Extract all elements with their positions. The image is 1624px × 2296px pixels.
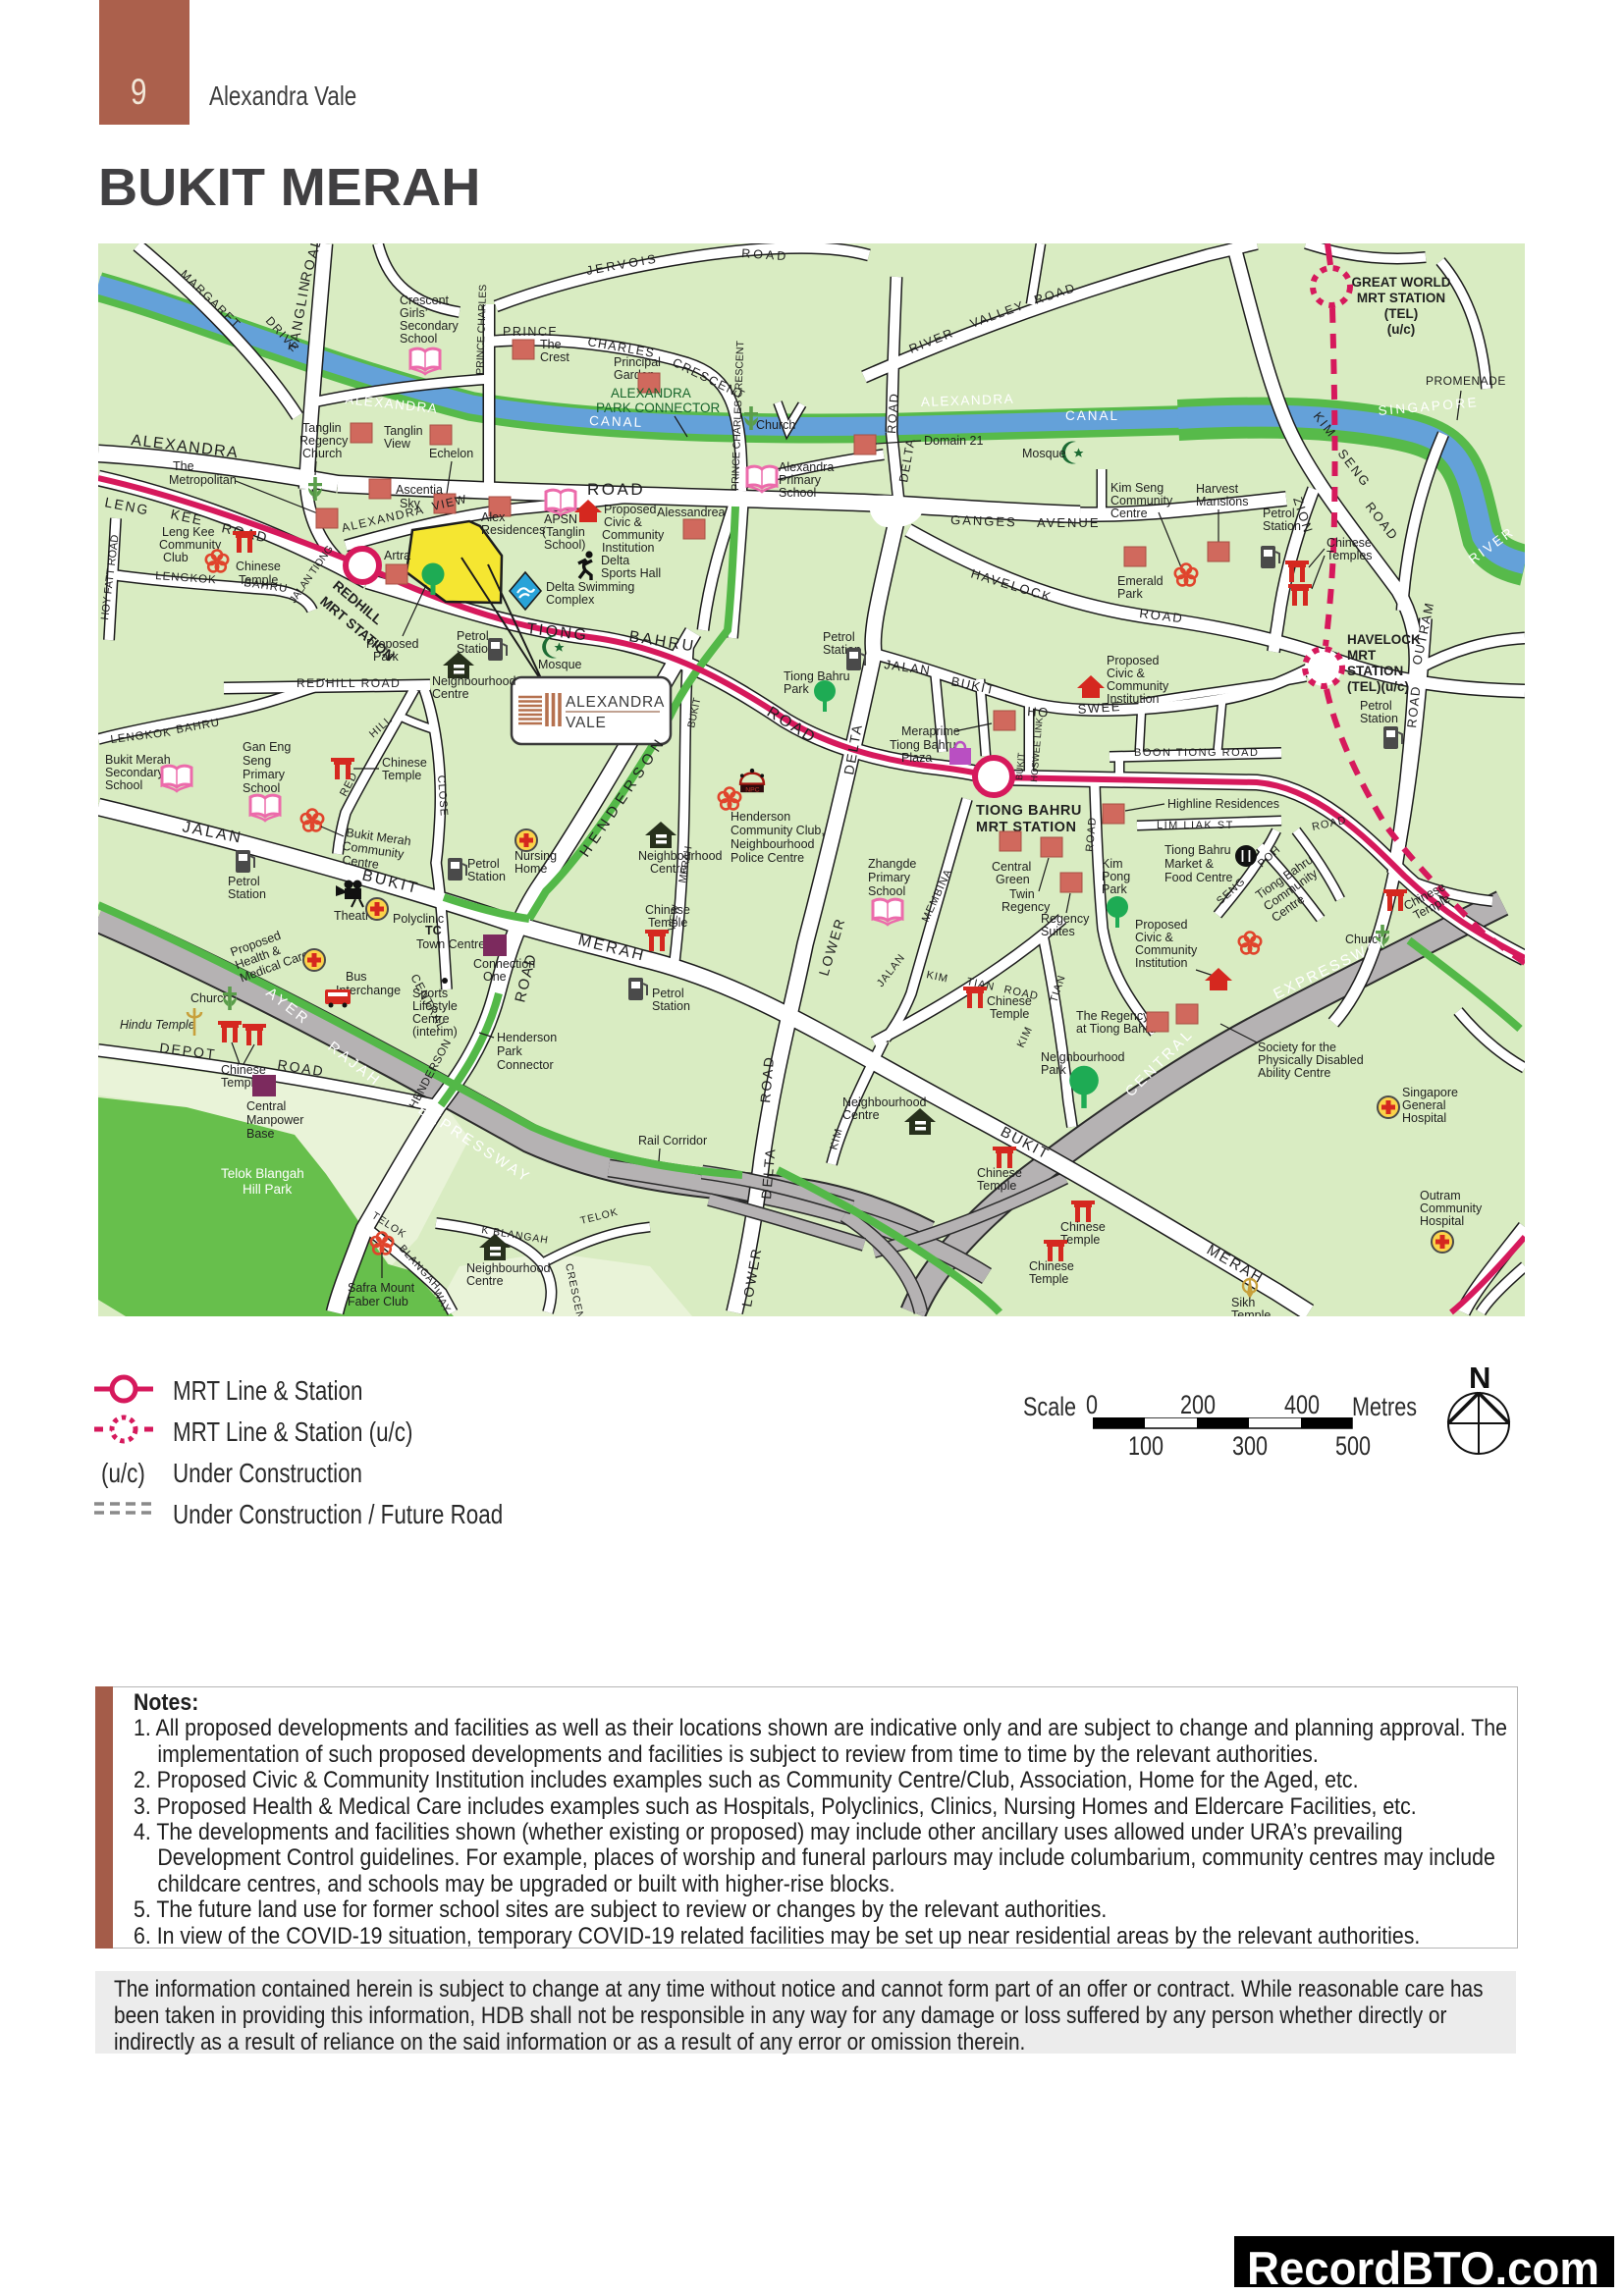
svg-text:Echelon: Echelon: [429, 447, 473, 460]
svg-text:Temple: Temple: [382, 769, 421, 782]
svg-text:Crescent: Crescent: [400, 294, 450, 307]
svg-text:Park: Park: [784, 682, 809, 696]
svg-text:View: View: [384, 437, 411, 451]
svg-text:Alexandra: Alexandra: [779, 460, 834, 474]
svg-text:Centre: Centre: [842, 1108, 880, 1122]
svg-text:Plaza: Plaza: [901, 751, 932, 765]
svg-text:Proposed: Proposed: [604, 503, 657, 516]
svg-text:Park: Park: [497, 1044, 522, 1058]
svg-text:Hindu Temple: Hindu Temple: [120, 1018, 195, 1032]
svg-text:Hospital: Hospital: [1402, 1111, 1446, 1125]
svg-text:ROAD: ROAD: [885, 392, 901, 434]
svg-text:Market &: Market &: [1164, 857, 1215, 871]
svg-text:Civic &: Civic &: [1107, 667, 1146, 680]
svg-text:Centre: Centre: [412, 1012, 450, 1026]
svg-text:Telok Blangah: Telok Blangah: [221, 1166, 304, 1181]
svg-text:Neighbourhood: Neighbourhood: [432, 674, 516, 688]
svg-text:Proposed: Proposed: [366, 637, 419, 651]
svg-text:Neighbourhood: Neighbourhood: [1041, 1050, 1125, 1064]
svg-text:Alex: Alex: [481, 510, 506, 524]
svg-text:Kim Seng: Kim Seng: [1110, 481, 1164, 495]
svg-text:Delta Swimming: Delta Swimming: [546, 580, 634, 594]
svg-text:Temple: Temple: [990, 1007, 1029, 1021]
svg-text:Twin: Twin: [1009, 887, 1035, 901]
svg-text:Proposed: Proposed: [1135, 918, 1188, 932]
svg-text:Rail Corridor: Rail Corridor: [638, 1134, 707, 1148]
svg-text:Residences: Residences: [481, 523, 545, 537]
svg-text:Kim: Kim: [1102, 857, 1123, 871]
svg-text:Nursing: Nursing: [514, 849, 557, 863]
svg-text:PROMENADE: PROMENADE: [1426, 374, 1506, 388]
svg-text:GREAT WORLD: GREAT WORLD: [1352, 275, 1451, 290]
svg-text:Chinese: Chinese: [977, 1166, 1022, 1180]
svg-text:Community: Community: [1135, 943, 1198, 957]
svg-text:Outram: Outram: [1420, 1189, 1461, 1202]
svg-text:MRT STATION: MRT STATION: [1357, 291, 1445, 305]
svg-text:Connection: Connection: [473, 957, 535, 971]
svg-text:CANAL: CANAL: [1065, 408, 1119, 423]
svg-text:STATION: STATION: [1347, 664, 1403, 678]
svg-text:Community: Community: [1107, 679, 1169, 693]
svg-text:General: General: [1402, 1098, 1445, 1112]
svg-text:PARK CONNECTOR: PARK CONNECTOR: [596, 400, 721, 415]
svg-text:Park: Park: [1117, 587, 1143, 601]
svg-text:Base: Base: [246, 1127, 275, 1141]
svg-text:Petrol: Petrol: [1263, 507, 1295, 520]
svg-text:School: School: [243, 781, 280, 795]
svg-text:Chinese: Chinese: [1029, 1259, 1074, 1273]
svg-text:Club: Club: [163, 551, 189, 564]
svg-text:Church: Church: [302, 447, 342, 460]
svg-text:Meraprime: Meraprime: [901, 724, 960, 738]
svg-text:Proposed: Proposed: [1107, 654, 1160, 667]
svg-text:Chinese: Chinese: [1060, 1220, 1106, 1234]
svg-text:Tiong Bahru: Tiong Bahru: [784, 669, 850, 683]
svg-text:Regency: Regency: [299, 434, 349, 448]
svg-text:REDHILL ROAD: REDHILL ROAD: [297, 676, 401, 690]
svg-text:MRT STATION: MRT STATION: [976, 820, 1076, 835]
svg-text:Centre: Centre: [1110, 507, 1148, 520]
svg-text:Suites: Suites: [1041, 925, 1075, 938]
svg-text:One: One: [483, 970, 507, 984]
svg-text:Police Centre: Police Centre: [731, 851, 804, 865]
svg-text:TC: TC: [425, 924, 442, 937]
svg-text:Park: Park: [1102, 882, 1127, 896]
svg-text:Bus: Bus: [346, 970, 367, 984]
svg-text:Sikh: Sikh: [1231, 1296, 1255, 1309]
svg-text:Community: Community: [159, 538, 222, 552]
svg-text:Community: Community: [1110, 494, 1173, 507]
svg-text:Community Club,: Community Club,: [731, 824, 825, 837]
svg-text:Centre: Centre: [432, 687, 469, 701]
svg-text:MRT: MRT: [1347, 648, 1377, 663]
svg-text:Petrol: Petrol: [467, 857, 500, 871]
svg-text:The: The: [173, 459, 194, 473]
svg-text:Singapore: Singapore: [1402, 1086, 1458, 1099]
svg-text:BOON TIONG ROAD: BOON TIONG ROAD: [1134, 747, 1259, 759]
svg-text:Sports Hall: Sports Hall: [601, 566, 661, 580]
svg-text:Chinese: Chinese: [236, 560, 281, 573]
svg-text:Civic &: Civic &: [604, 515, 643, 529]
svg-text:Community: Community: [1420, 1201, 1483, 1215]
svg-text:Complex: Complex: [546, 593, 595, 607]
svg-text:Hill Park: Hill Park: [243, 1182, 293, 1197]
svg-text:Church: Church: [756, 418, 795, 432]
svg-text:Tiong Bahru: Tiong Bahru: [1164, 843, 1231, 857]
svg-text:Chinese: Chinese: [221, 1063, 266, 1077]
svg-text:Sports: Sports: [412, 987, 448, 1000]
svg-text:Petrol: Petrol: [823, 630, 855, 644]
svg-text:Mosque: Mosque: [1022, 447, 1066, 460]
svg-text:Station: Station: [1263, 519, 1301, 533]
svg-text:School: School: [868, 884, 905, 898]
svg-text:CANAL: CANAL: [589, 413, 644, 430]
svg-text:Centre: Centre: [466, 1274, 504, 1288]
svg-text:ALEXANDRA: ALEXANDRA: [566, 694, 665, 711]
svg-text:NPC: NPC: [745, 786, 759, 793]
svg-text:Temple: Temple: [977, 1179, 1016, 1193]
svg-text:Girls’: Girls’: [400, 306, 427, 320]
svg-text:Food Centre: Food Centre: [1164, 871, 1233, 884]
svg-text:Hospital: Hospital: [1420, 1214, 1464, 1228]
svg-text:Alessandrea: Alessandrea: [657, 506, 726, 519]
svg-text:at Tiong Bahru: at Tiong Bahru: [1076, 1022, 1156, 1036]
svg-text:Tanglin: Tanglin: [302, 421, 342, 435]
svg-text:GANGES: GANGES: [950, 512, 1017, 529]
svg-text:Emerald: Emerald: [1117, 574, 1164, 588]
svg-text:Manpower: Manpower: [246, 1113, 303, 1127]
svg-text:Institution: Institution: [1135, 956, 1188, 970]
svg-text:Petrol: Petrol: [652, 987, 684, 1000]
svg-text:Leng Kee: Leng Kee: [162, 525, 215, 539]
svg-text:Society for the: Society for the: [1258, 1041, 1336, 1054]
svg-text:Secondary: Secondary: [105, 766, 165, 779]
svg-text:Henderson: Henderson: [497, 1031, 557, 1044]
svg-text:Highline Residences: Highline Residences: [1167, 797, 1279, 811]
svg-text:Mosque: Mosque: [538, 658, 582, 671]
svg-text:Station: Station: [1360, 712, 1398, 725]
svg-text:Ability Centre: Ability Centre: [1258, 1066, 1330, 1080]
svg-text:Station: Station: [652, 999, 690, 1013]
svg-text:Green: Green: [996, 873, 1030, 886]
svg-text:Neighbourhood: Neighbourhood: [731, 837, 815, 851]
svg-text:Faber Club: Faber Club: [348, 1295, 408, 1308]
svg-text:Gan Eng: Gan Eng: [243, 740, 291, 754]
svg-text:Institution: Institution: [1107, 692, 1160, 706]
svg-text:Metropolitan: Metropolitan: [169, 473, 237, 487]
svg-text:APSN: APSN: [544, 512, 577, 526]
svg-text:(interim): (interim): [412, 1025, 458, 1039]
svg-text:Artra: Artra: [384, 549, 410, 562]
svg-text:Ascentia: Ascentia: [396, 483, 443, 497]
svg-text:Station: Station: [467, 870, 506, 883]
svg-text:School: School: [779, 486, 816, 500]
svg-text:Henderson: Henderson: [731, 810, 790, 824]
svg-text:Primary: Primary: [868, 871, 911, 884]
svg-text:ALEXANDRA: ALEXANDRA: [611, 386, 691, 400]
svg-text:Petrol: Petrol: [228, 875, 260, 888]
svg-text:Temple: Temple: [1029, 1272, 1068, 1286]
svg-text:Neighbourhood: Neighbourhood: [842, 1095, 927, 1109]
svg-text:AVENUE: AVENUE: [1037, 515, 1101, 530]
svg-text:Tiong Bahru: Tiong Bahru: [890, 738, 956, 752]
svg-text:Crest: Crest: [540, 350, 569, 364]
svg-text:Town Centre: Town Centre: [416, 937, 485, 951]
svg-text:Central: Central: [246, 1099, 286, 1113]
svg-text:Primary: Primary: [243, 768, 286, 781]
svg-text:Community: Community: [602, 528, 665, 542]
svg-text:Seng: Seng: [243, 754, 271, 768]
svg-text:The: The: [540, 338, 562, 351]
svg-text:Central: Central: [992, 860, 1031, 874]
svg-text:VALE: VALE: [566, 715, 607, 731]
svg-text:LIM LIAK ST: LIM LIAK ST: [1157, 820, 1234, 831]
svg-text:The Regency: The Regency: [1076, 1009, 1150, 1023]
svg-text:N: N: [1469, 1361, 1490, 1395]
svg-text:(u/c): (u/c): [1387, 322, 1416, 337]
svg-text:Temple: Temple: [1231, 1308, 1271, 1316]
svg-text:Station: Station: [228, 887, 266, 901]
svg-text:Chinese: Chinese: [382, 756, 427, 770]
svg-text:ROAD: ROAD: [587, 480, 645, 499]
svg-text:Home: Home: [514, 862, 547, 876]
svg-text:School: School: [105, 778, 142, 792]
svg-text:(TEL): (TEL): [1384, 306, 1419, 321]
svg-text:Lifestyle: Lifestyle: [412, 999, 458, 1013]
svg-text:Park: Park: [1041, 1063, 1066, 1077]
svg-text:Bukit Merah: Bukit Merah: [105, 753, 171, 767]
svg-text:Civic &: Civic &: [1135, 931, 1174, 944]
svg-text:Regency: Regency: [1041, 912, 1090, 926]
svg-text:Zhangde: Zhangde: [868, 857, 916, 871]
svg-text:Institution: Institution: [602, 541, 655, 555]
svg-text:Neighbourhood: Neighbourhood: [466, 1261, 551, 1275]
svg-text:Physically Disabled: Physically Disabled: [1258, 1053, 1364, 1067]
svg-text:TIONG BAHRU: TIONG BAHRU: [976, 803, 1082, 819]
svg-text:Tanglin: Tanglin: [384, 424, 423, 438]
svg-text:(TEL)(u/c): (TEL)(u/c): [1347, 679, 1409, 694]
svg-text:School: School: [400, 332, 437, 346]
svg-text:(Tanglin: (Tanglin: [542, 525, 585, 539]
svg-text:PRINCE: PRINCE: [503, 325, 558, 339]
svg-text:Petrol: Petrol: [1360, 699, 1392, 713]
svg-text:Temples: Temples: [1326, 549, 1373, 562]
svg-text:Petrol: Petrol: [457, 629, 489, 643]
svg-text:Pong: Pong: [1102, 870, 1130, 883]
svg-text:Park: Park: [373, 650, 399, 664]
svg-text:Chinese: Chinese: [987, 994, 1032, 1008]
svg-text:Harvest: Harvest: [1196, 482, 1239, 496]
svg-text:Domain 21: Domain 21: [924, 434, 983, 448]
svg-text:Chinese: Chinese: [1326, 536, 1372, 550]
svg-text:Secondary: Secondary: [400, 319, 460, 333]
svg-text:HAVELOCK: HAVELOCK: [1347, 632, 1421, 647]
svg-text:Delta: Delta: [601, 554, 629, 567]
svg-text:Primary: Primary: [779, 473, 822, 487]
svg-text:School): School): [544, 538, 585, 552]
svg-text:Safra Mount: Safra Mount: [348, 1281, 415, 1295]
svg-text:Mansions: Mansions: [1196, 495, 1249, 508]
svg-text:Connector: Connector: [497, 1058, 554, 1072]
